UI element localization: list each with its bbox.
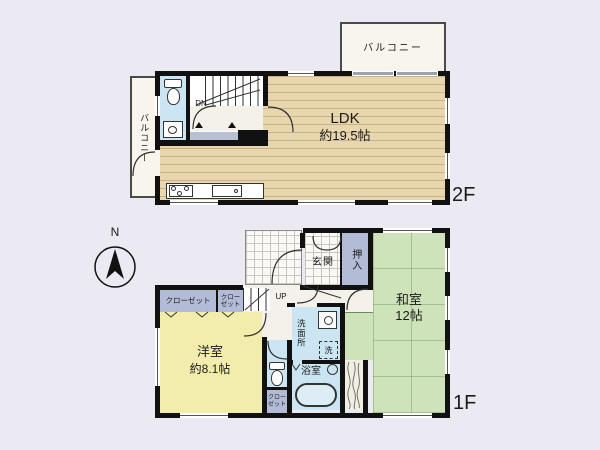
window: [383, 413, 432, 418]
room-genkan-label: 玄関: [307, 256, 339, 269]
door-opening: [155, 150, 160, 176]
closet-west-large-label: クローゼット: [160, 290, 216, 312]
wall: [216, 290, 218, 312]
wall: [155, 140, 268, 146]
bathtub-icon: [295, 383, 337, 407]
floor-plan: バルコニー バルコニー DN LDK 約19.5帖 2F N: [0, 0, 600, 450]
wall: [186, 76, 190, 144]
washing-machine-icon: 洗: [319, 341, 338, 359]
balcony-2f-west: バルコニー: [130, 76, 157, 198]
bath-faucet-icon: [327, 364, 338, 375]
window: [445, 153, 450, 179]
entrance-porch: [245, 230, 302, 285]
balcony-2f-north: バルコニー: [340, 22, 446, 75]
stairs-2f-label: DN: [189, 99, 213, 109]
stairs-1f: [243, 288, 270, 311]
room-yoshitsu-size: 約8.1帖: [170, 362, 250, 377]
floor-1f-label: 1F: [453, 392, 493, 414]
balcony-2f-north-label: バルコニー: [342, 24, 444, 73]
wall: [340, 233, 342, 287]
wall: [287, 340, 292, 413]
window: [445, 350, 450, 374]
toilet-bowl-icon-1f: [271, 370, 283, 386]
room-yoshitsu-name: 洋室: [170, 344, 250, 360]
sliding-door: [396, 71, 438, 76]
room-bathroom-label: 浴室: [296, 366, 326, 378]
closet-south-label: クローゼット: [268, 393, 286, 411]
room-senmenjo-label: 洗面所: [294, 312, 307, 354]
window: [383, 228, 432, 233]
floor-2f-label: 2F: [452, 184, 492, 206]
wall: [262, 337, 267, 413]
wall: [368, 228, 373, 288]
window: [155, 96, 160, 116]
door-opening: [295, 303, 317, 307]
compass-north-label: N: [105, 226, 125, 240]
counter-2f: [190, 131, 238, 140]
room-ldk-name: LDK: [300, 111, 390, 127]
window: [170, 200, 218, 205]
door-opening: [293, 360, 302, 364]
window: [155, 328, 160, 386]
wall: [263, 71, 268, 106]
window: [388, 200, 432, 205]
closet-west-small-label: クローゼット: [219, 292, 242, 310]
stairs-2f: [205, 76, 263, 106]
wall: [363, 360, 368, 413]
window: [445, 98, 450, 124]
stairs-1f-label: UP: [269, 292, 293, 302]
sink-drain-icon: [234, 189, 238, 193]
hall-2f: [190, 106, 263, 132]
toilet-tank-icon-2f: [164, 79, 182, 88]
balcony-2f-west-label: バルコニー: [134, 88, 154, 188]
stove-burner-icon: [184, 186, 189, 191]
wall: [300, 233, 305, 248]
window: [445, 296, 450, 320]
wall: [300, 285, 373, 290]
window: [180, 413, 228, 418]
room-ldk-size: 約19.5帖: [300, 129, 390, 144]
closet-oshiire-label: 押入: [344, 240, 366, 280]
sliding-door: [352, 71, 394, 76]
wall: [267, 387, 287, 390]
compass-icon: [95, 247, 135, 287]
window: [298, 200, 355, 205]
stove-burner-icon: [177, 191, 182, 196]
basin-bowl-icon-2f: [168, 126, 177, 134]
toilet-bowl-icon-2f: [167, 88, 180, 105]
stove-burner-icon: [171, 186, 176, 191]
window: [445, 248, 450, 272]
wall: [340, 303, 345, 413]
wood-alcove: [345, 360, 363, 410]
room-washitsu-extension: [345, 312, 373, 360]
window: [288, 71, 314, 76]
washbasin-bowl-icon: [324, 316, 333, 325]
room-washitsu-name: 和室: [379, 292, 439, 308]
toilet-tank-icon-1f: [269, 362, 285, 370]
room-washitsu-size: 12帖: [379, 309, 439, 324]
